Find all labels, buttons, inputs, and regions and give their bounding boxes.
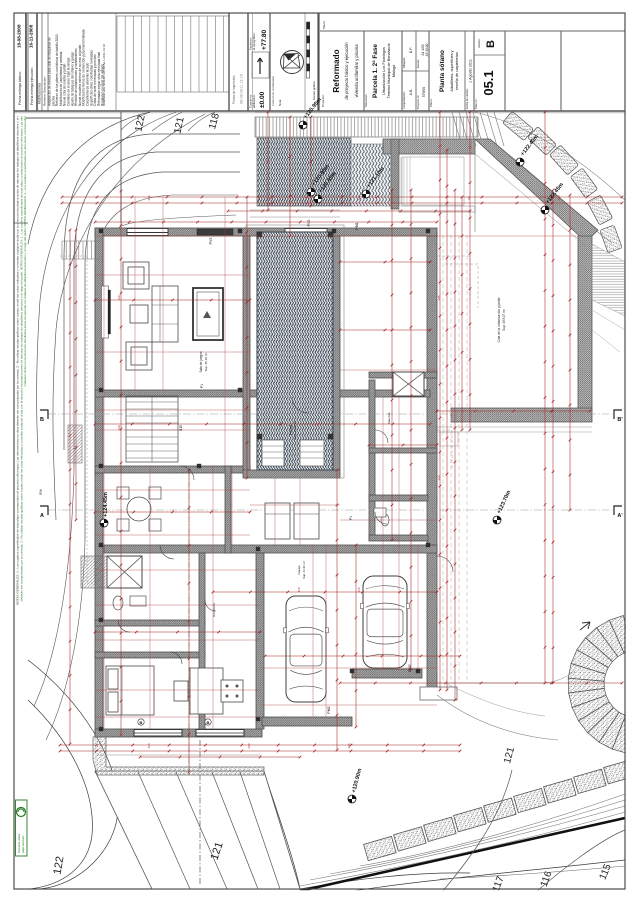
svg-text:+123.70m: +123.70m — [496, 490, 512, 515]
svg-text:Dormitorio: Dormitorio — [212, 603, 216, 617]
svg-text:Reformado: Reformado — [332, 49, 341, 92]
svg-text:Urbanización Los Flamingos: Urbanización Los Flamingos — [382, 47, 386, 95]
svg-text:122: 122 — [133, 114, 147, 133]
svg-text:PM2: PM2 — [327, 706, 331, 713]
svg-text:Fecha de impresión:: Fecha de impresión: — [232, 75, 236, 104]
svg-text:Escala:: Escala: — [416, 59, 420, 68]
svg-text:Sup: 453.07 m²: Sup: 453.07 m² — [502, 309, 506, 331]
svg-text:A': A' — [617, 513, 623, 519]
svg-text:410: 410 — [557, 195, 561, 200]
svg-text:Plazo:: Plazo: — [322, 20, 326, 29]
svg-text:08-08-2011 13:18: 08-08-2011 13:18 — [240, 74, 244, 104]
svg-text:410: 410 — [147, 743, 151, 748]
svg-text:Planta sótano: Planta sótano — [439, 50, 446, 92]
svg-text:18-08-2008: 18-08-2008 — [17, 24, 22, 48]
svg-text:230: 230 — [147, 195, 151, 200]
svg-text:Modificaciones: Modificaciones — [38, 83, 42, 104]
svg-text:B: B — [485, 40, 497, 48]
svg-text:05.1: 05.1 — [481, 70, 496, 95]
svg-text:Cotas en m² coordenadas: Cotas en m² coordenadas — [271, 75, 275, 106]
svg-text:PM2: PM2 — [408, 664, 412, 671]
svg-text:B': B' — [617, 417, 623, 423]
svg-text:Sup: 35.00 m²: Sup: 35.00 m² — [293, 421, 297, 440]
svg-text:Cota de la urbanización y jard: Cota de la urbanización y jardín — [497, 297, 501, 342]
svg-text:PM1: PM1 — [355, 222, 359, 229]
svg-text:Parcela 1. 2ª Fase: Parcela 1. 2ª Fase — [372, 44, 379, 98]
svg-text:P1: P1 — [349, 516, 353, 520]
svg-text:Fecha entrega ejecución:: Fecha entrega ejecución: — [30, 67, 34, 105]
svg-text:Málaga: Málaga — [392, 64, 396, 77]
svg-text:Recuerda utilizar: Recuerda utilizar — [17, 833, 21, 853]
svg-text:Término Municipal de Benahavís: Término Municipal de Benahavís — [387, 43, 391, 98]
svg-text:Albañilería, superficies y: Albañilería, superficies y — [450, 50, 454, 91]
svg-text:120: 120 — [117, 295, 121, 300]
svg-text:papel reciclado: papel reciclado — [21, 835, 25, 853]
svg-text:Realizado a la revisión con fe: Realizado a la revisión con fecha 1.2011… — [102, 44, 106, 106]
svg-text:A3 1/100: A3 1/100 — [425, 43, 429, 56]
svg-text:Fecha entrega básico:: Fecha entrega básico: — [18, 71, 22, 105]
svg-text:Revisión: Descripción:: Revisión: Descripción: — [43, 76, 47, 106]
svg-text:Garaje: Garaje — [297, 565, 301, 574]
svg-text:B10: B10 — [179, 425, 183, 431]
svg-text:Nota:: Nota: — [278, 99, 282, 106]
svg-text:120: 120 — [347, 743, 351, 748]
svg-text:D.F.: D.F. — [409, 47, 413, 54]
svg-text:edificación:: edificación: — [252, 94, 256, 108]
svg-text:345: 345 — [257, 195, 261, 200]
svg-text:16-11-2008: 16-11-2008 — [29, 24, 34, 48]
svg-text:+120.90m: +120.90m — [351, 768, 363, 794]
svg-text:cualquier duda con la direcció: cualquier duda con la dirección facultat… — [23, 116, 27, 387]
svg-text:Plano:: Plano: — [429, 98, 433, 107]
svg-text:120: 120 — [117, 425, 121, 430]
svg-text:230: 230 — [247, 743, 251, 748]
svg-text:Sup: 41.30 m²: Sup: 41.30 m² — [302, 561, 306, 579]
svg-text:P1: P1 — [200, 384, 204, 388]
svg-text:Dibujado:: Dibujado: — [402, 57, 406, 68]
svg-text:120: 120 — [357, 195, 361, 200]
svg-text:B: B — [140, 720, 143, 725]
svg-text:60: 60 — [467, 196, 471, 200]
svg-text:el topográfico:: el topográfico: — [252, 32, 256, 50]
svg-text:reseña de carpinterías: reseña de carpinterías — [455, 52, 459, 90]
svg-text:345: 345 — [437, 295, 441, 300]
svg-text:120: 120 — [437, 475, 441, 480]
svg-text:de proyecto básico y ejecución: de proyecto básico y ejecución — [344, 42, 349, 100]
svg-text:Plano nº:: Plano nº: — [474, 98, 478, 109]
svg-text:122: 122 — [52, 855, 67, 875]
svg-text:+77.80: +77.80 — [261, 30, 268, 50]
svg-text:121: 121 — [172, 116, 186, 135]
svg-text:B: B — [40, 417, 44, 423]
svg-text:B: B — [207, 720, 210, 725]
svg-text:+124.45m: +124.45m — [103, 492, 109, 517]
svg-text:Sala inst.: Sala inst. — [387, 412, 391, 425]
svg-text:579/06: 579/06 — [422, 87, 426, 97]
svg-text:115: 115 — [598, 862, 614, 881]
svg-text:121: 121 — [502, 745, 517, 764]
svg-text:1 Agosto 2011: 1 Agosto 2011 — [469, 59, 473, 83]
svg-text:PV3: PV3 — [307, 220, 311, 227]
svg-text:A.B.: A.B. — [409, 89, 413, 96]
svg-text:PV3: PV3 — [209, 238, 213, 245]
svg-text:Proyecto nº:: Proyecto nº: — [416, 95, 420, 109]
svg-text:vivienda unifamiliar y piscina: vivienda unifamiliar y piscina — [354, 44, 359, 98]
svg-text:Versión:: Versión: — [477, 38, 481, 48]
svg-text:515: 515 — [357, 587, 361, 592]
svg-text:±0.00: ±0.00 — [259, 91, 266, 108]
svg-text:Fecha de versión:: Fecha de versión: — [465, 88, 469, 109]
svg-text:Adaptación de niveles para sal: Adaptación de niveles para sala de máqui… — [48, 37, 52, 106]
svg-text:Sala de juegos: Sala de juegos — [199, 351, 203, 372]
svg-text:410: 410 — [297, 587, 301, 592]
svg-text:A: A — [40, 513, 44, 519]
svg-text:5%: 5% — [38, 489, 43, 495]
svg-text:Comprobación:: Comprobación: — [402, 91, 406, 109]
svg-text:Sup: 45.10 m²: Sup: 45.10 m² — [204, 353, 208, 372]
svg-text:Escala gráfica: Escala gráfica — [312, 81, 316, 100]
svg-text:Situación:: Situación: — [364, 94, 368, 107]
